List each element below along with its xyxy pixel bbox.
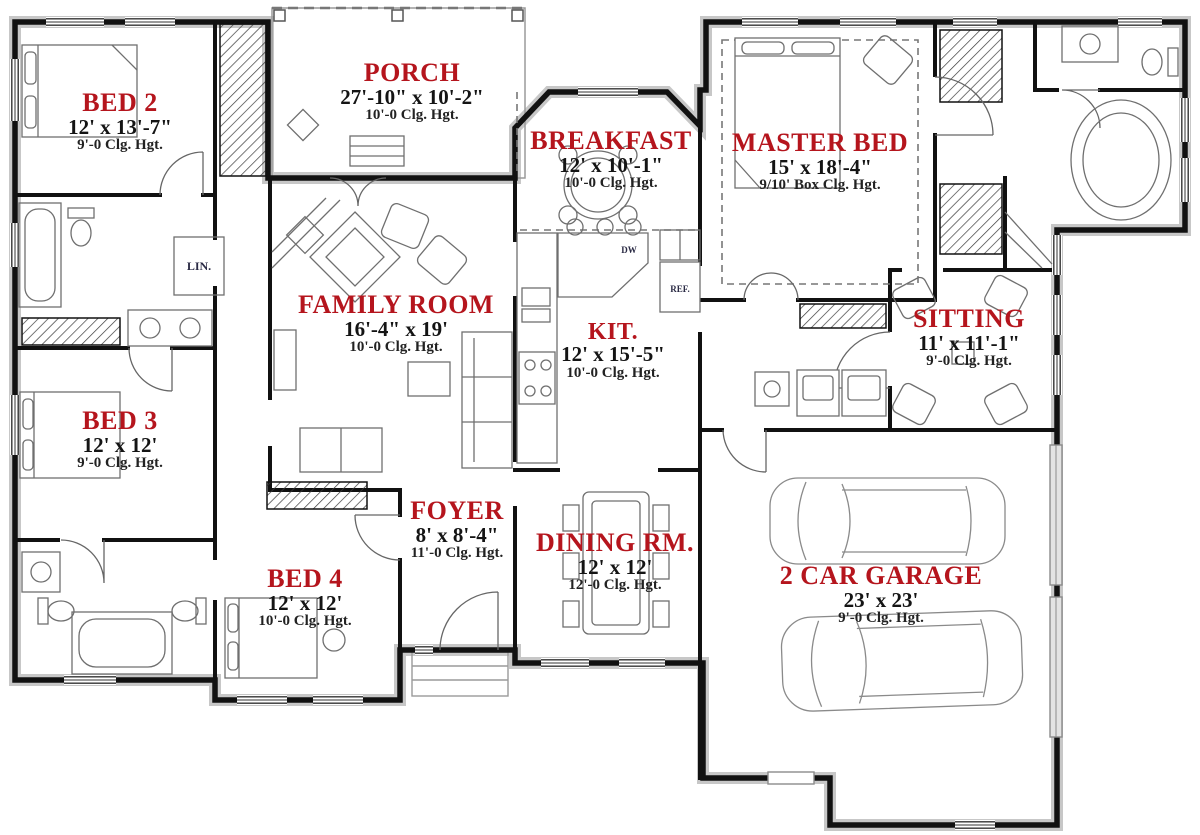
porch-outline [272, 8, 525, 178]
linen-closet-label: LIN. [187, 259, 211, 273]
dishwasher-label: DW [621, 245, 637, 255]
entry-stoop [412, 652, 508, 696]
furniture [19, 26, 1178, 712]
windows [10, 17, 1190, 830]
floorplan-drawing: LIN. DW REF. [0, 0, 1200, 835]
exterior-sheathing [15, 22, 1185, 825]
floor-plan-page: LIN. DW REF. BED 2 12' x 13'-7" 9'-0 Clg… [0, 0, 1200, 835]
refrigerator-label: REF. [670, 284, 689, 294]
exterior-walls [15, 22, 1185, 825]
